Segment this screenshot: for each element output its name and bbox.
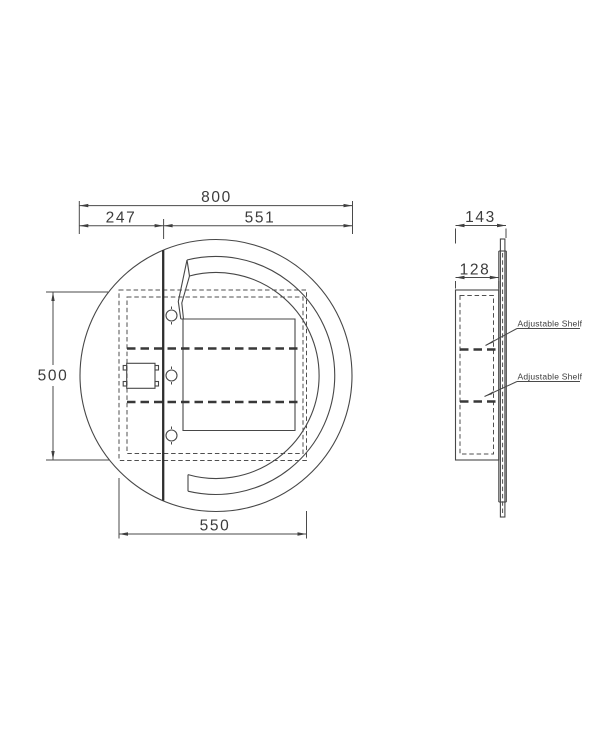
arrowhead: [456, 224, 465, 227]
door-edge-top-cap: [187, 260, 190, 276]
mounting-block-tab: [123, 382, 127, 387]
arrowhead: [497, 224, 506, 227]
shelf-label-2: Adjustable Shelf: [518, 372, 583, 382]
hinge-bottom: [166, 427, 177, 445]
cabinet-side-outline: [456, 290, 499, 460]
hinge-circle: [166, 310, 177, 321]
arrowhead: [51, 292, 54, 301]
cabinet-hidden-outline-outer: [119, 290, 307, 461]
arrowhead: [490, 276, 499, 279]
arrowhead: [79, 224, 88, 227]
arrowhead: [155, 224, 164, 227]
leader-arrowhead: [485, 391, 494, 396]
side-view: 143 128 Adjustable Shelf: [456, 209, 583, 517]
dimension-value-500: 500: [38, 368, 69, 385]
arrowhead: [164, 224, 173, 227]
mounting-block-tab: [155, 382, 159, 387]
mounting-block-tab: [155, 366, 159, 371]
dimension-value-800: 800: [201, 189, 232, 206]
dimension-value-551: 551: [245, 210, 276, 227]
mirror-outline: [80, 240, 352, 512]
mounting-block-tab: [123, 366, 127, 371]
dimension-value-247: 247: [106, 210, 137, 227]
dimension-overall-depth: 143: [456, 209, 507, 244]
drawing-canvas: 800 247 551 500: [0, 0, 600, 750]
front-view: 800 247 551 500: [38, 189, 353, 539]
arrowhead: [79, 204, 88, 207]
arrowhead: [298, 532, 307, 535]
arrowhead: [344, 204, 353, 207]
mirror-inner-arc-outer: [187, 256, 335, 494]
hinge-middle: [166, 367, 177, 385]
arrowhead: [119, 532, 128, 535]
dimension-hinge-split: 247 551: [79, 210, 352, 240]
arrowhead: [344, 224, 353, 227]
shelf-label-1: Adjustable Shelf: [518, 319, 583, 329]
drawing-page: 800 247 551 500: [0, 0, 600, 750]
dimension-value-143: 143: [465, 209, 496, 226]
mounting-block-body: [127, 363, 155, 388]
mounting-block: [123, 363, 158, 388]
dimension-cabinet-height: 500: [38, 292, 109, 460]
cabinet-side-hidden-inner: [460, 296, 494, 455]
hinge-top: [166, 307, 177, 325]
dimension-value-550: 550: [200, 518, 231, 535]
dimension-value-128: 128: [460, 262, 491, 279]
hinge-circle: [166, 370, 177, 381]
door-back-panel: [181, 319, 295, 431]
mirror-side-profile: [499, 239, 507, 517]
mirror-inner-arc-inner: [188, 273, 319, 479]
hinge-circle: [166, 430, 177, 441]
dimension-cabinet-depth: 128: [456, 262, 499, 289]
arrowhead: [51, 451, 54, 460]
dimension-cabinet-width: 550: [119, 478, 307, 539]
